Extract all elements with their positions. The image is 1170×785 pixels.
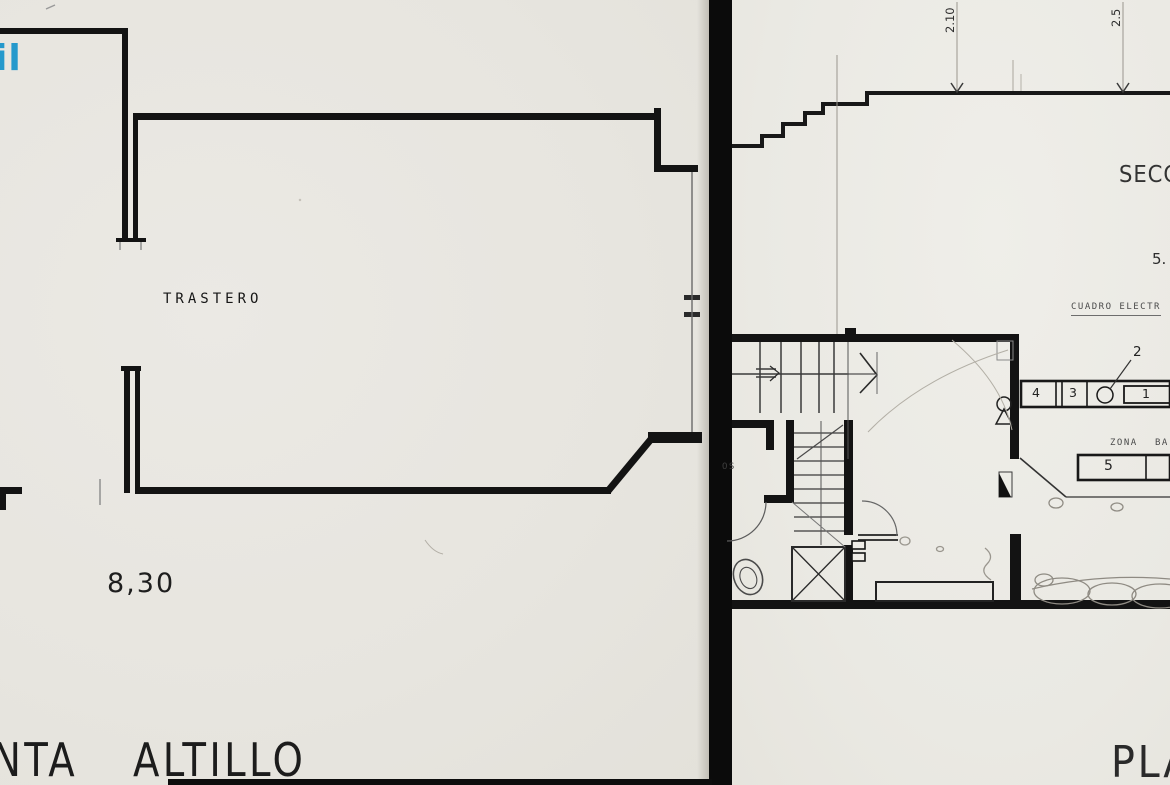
right-plan-title-fragment: PLA (1111, 737, 1170, 785)
watermark-logo-fragment: il (0, 38, 22, 79)
left-plan-title-fragment-1: NTA (0, 733, 78, 785)
room-label-trastero: TRASTERO (163, 291, 262, 307)
shelf-cell-4: 4 (1032, 385, 1040, 400)
callout-number-2: 2 (1133, 344, 1142, 360)
left-plan-title-fragment-2: ALTILLO (133, 733, 306, 785)
vertical-dimension-2-5: 2.5 (1109, 9, 1123, 27)
scan-divider-bar (709, 0, 732, 785)
shelf-cell-3: 3 (1069, 385, 1077, 400)
scanned-plan-sheet: il TRASTERO 8,30 NTA ALTILLO 2.10 2.5 SE… (0, 0, 1170, 785)
section-title-fragment: SECC (1119, 162, 1170, 188)
shelf-cell-1: 1 (1142, 386, 1150, 401)
aseos-label-fragment: OS (722, 462, 736, 472)
left-plan-panel (0, 0, 709, 785)
scan-divider-shadow (697, 0, 709, 785)
vertical-dimension-2-10: 2.10 (943, 7, 957, 33)
dimension-right-fragment: 5. (1152, 250, 1166, 268)
zona-label: ZONA (1110, 438, 1138, 448)
counter-cell-5: 5 (1104, 458, 1113, 474)
barra-label-fragment: BA (1155, 438, 1169, 448)
dimension-8-30: 8,30 (107, 568, 175, 599)
right-plan-panel (732, 0, 1170, 785)
electrical-panel-label: CUADRO ELECTR (1071, 302, 1161, 316)
